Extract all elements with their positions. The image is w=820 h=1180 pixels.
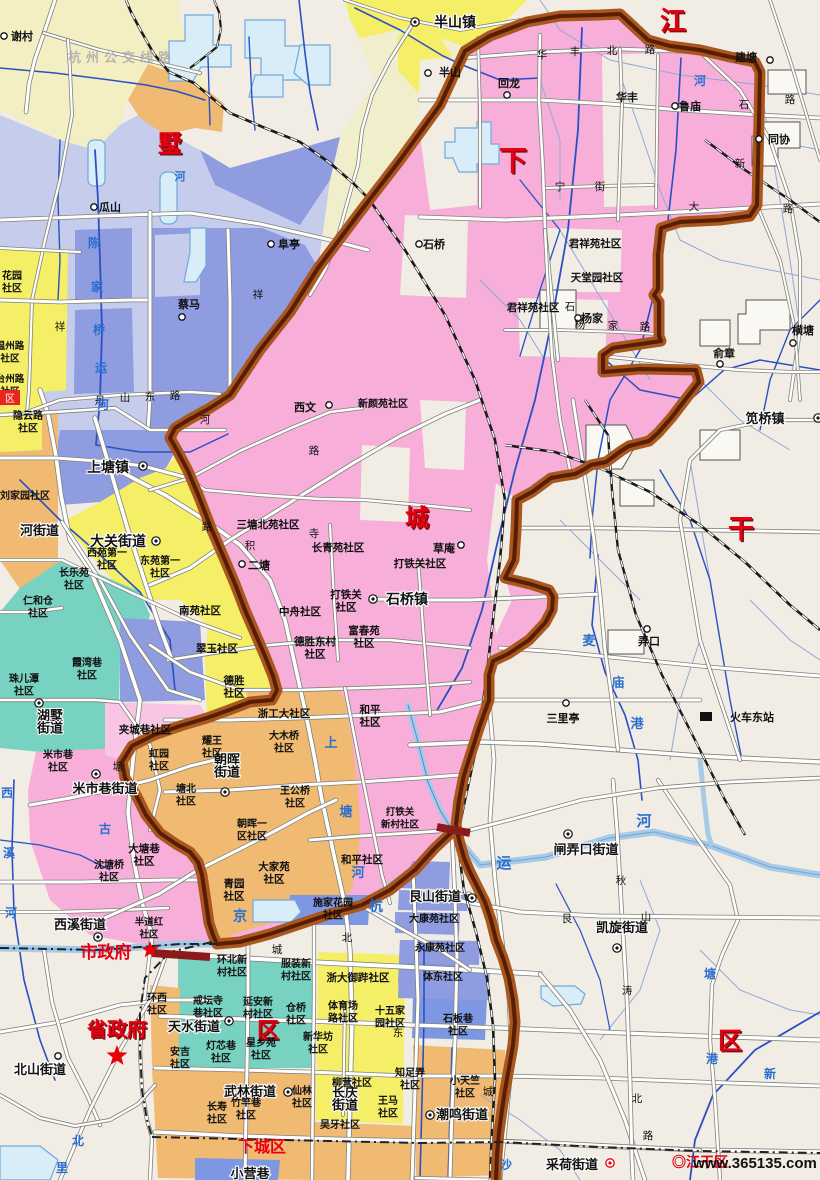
svg-text:北: 北 [632,1093,643,1105]
svg-text:谢村: 谢村 [11,29,33,43]
svg-text:社区: 社区 [47,761,68,774]
svg-text:社区: 社区 [377,1107,398,1120]
svg-text:社区: 社区 [353,637,375,650]
svg-text:路: 路 [643,1129,654,1142]
svg-text:星乡苑: 星乡苑 [246,1036,276,1049]
svg-text:山: 山 [120,392,131,404]
svg-text:石桥镇: 石桥镇 [385,591,428,607]
svg-text:麦: 麦 [582,633,596,648]
svg-text:东: 东 [393,1026,404,1039]
svg-text:溪: 溪 [3,845,16,860]
svg-text:市政府: 市政府 [81,942,132,962]
svg-text:闸弄口街道: 闸弄口街道 [553,842,618,857]
svg-text:温州路: 温州路 [0,340,25,352]
svg-text:河: 河 [636,812,651,830]
svg-text:塘: 塘 [339,804,352,819]
svg-text:霞湾巷: 霞湾巷 [72,656,103,669]
svg-text:路: 路 [645,43,656,56]
svg-text:北: 北 [607,45,618,57]
svg-text:君祥苑社区: 君祥苑社区 [507,301,560,314]
svg-text:南苑社区: 南苑社区 [179,604,221,617]
svg-text:君祥苑社区: 君祥苑社区 [569,237,622,250]
svg-text:城: 城 [483,1086,494,1098]
svg-text:社区: 社区 [63,579,84,592]
svg-text:河: 河 [4,905,17,920]
svg-text:台州路: 台州路 [0,373,25,385]
svg-text:德胜: 德胜 [223,674,245,687]
svg-text:施家花园: 施家花园 [313,896,353,909]
svg-text:服装新: 服装新 [281,957,311,970]
svg-text:河: 河 [693,73,706,88]
svg-text:西苑第一: 西苑第一 [87,546,127,559]
svg-text:采荷街道: 采荷街道 [545,1157,598,1172]
svg-text:半山: 半山 [439,65,461,79]
svg-text:墅: 墅 [158,131,182,158]
svg-text:社区: 社区 [322,909,343,922]
svg-text:社区: 社区 [335,601,357,614]
svg-text:城: 城 [405,504,429,532]
svg-text:大关街道: 大关街道 [90,533,146,549]
svg-text:吴牙社区: 吴牙社区 [320,1118,360,1131]
svg-text:塘: 塘 [113,760,124,773]
svg-text:十五家: 十五家 [375,1004,406,1017]
svg-text:柳营社区: 柳营社区 [332,1076,372,1089]
svg-text:里: 里 [56,1160,68,1175]
svg-text:竹竿巷: 竹竿巷 [230,1096,262,1109]
svg-text:社区: 社区 [210,1052,231,1065]
svg-text:社区: 社区 [175,795,196,808]
svg-text:西: 西 [1,786,13,800]
svg-text:潮鸣街道: 潮鸣街道 [436,1107,488,1122]
svg-text:朝晖一: 朝晖一 [237,817,267,830]
svg-text:建塘: 建塘 [735,50,757,64]
svg-text:耀王: 耀王 [201,734,222,747]
svg-text:翠玉社区: 翠玉社区 [196,642,238,655]
svg-text:回龙: 回龙 [498,76,520,90]
svg-text:体育场: 体育场 [328,999,358,1012]
svg-text:路: 路 [202,520,213,533]
svg-text:港: 港 [630,716,644,731]
svg-text:家: 家 [608,319,619,332]
svg-text:新村社区: 新村社区 [381,819,420,831]
svg-text:武林街道: 武林街道 [224,1084,276,1099]
svg-text:延安新: 延安新 [242,995,273,1008]
svg-text:浙大御跸社区: 浙大御跸社区 [327,971,390,984]
svg-text:新: 新 [735,157,746,170]
svg-text:社区: 社区 [250,1049,271,1062]
svg-text:陈: 陈 [88,235,100,250]
svg-text:瓜山: 瓜山 [99,200,121,214]
svg-text:涛: 涛 [622,984,633,997]
svg-text:村社区: 村社区 [217,966,247,979]
svg-text:西文: 西文 [294,400,317,414]
svg-text:笕桥镇: 笕桥镇 [745,411,784,426]
svg-text:社区: 社区 [76,669,97,682]
svg-text:沈塘桥: 沈塘桥 [94,858,125,871]
svg-text:寺: 寺 [309,528,320,540]
svg-text:长乐苑: 长乐苑 [59,566,89,579]
svg-text:村社区: 村社区 [243,1008,273,1021]
svg-text:路: 路 [783,202,794,215]
svg-text:街道: 街道 [331,1098,358,1113]
svg-text:祥: 祥 [55,320,66,333]
svg-text:河: 河 [351,865,364,880]
svg-text:横塘: 横塘 [792,323,814,337]
svg-text:社区: 社区 [206,1113,227,1126]
svg-text:祥: 祥 [253,288,264,301]
svg-text:和平: 和平 [359,703,381,716]
svg-text:家: 家 [91,279,104,294]
svg-text:永康苑社区: 永康苑社区 [414,941,465,954]
svg-text:火车东站: 火车东站 [730,710,774,724]
svg-text:杨: 杨 [575,318,586,331]
svg-text:区: 区 [718,1028,742,1055]
svg-text:打铁关: 打铁关 [386,806,415,818]
svg-text:石: 石 [565,301,576,313]
svg-text:米市巷: 米市巷 [43,748,74,761]
svg-text:社区: 社区 [359,716,381,729]
svg-text:弄口: 弄口 [637,635,660,648]
svg-text:社区: 社区 [263,873,285,886]
svg-text:仓桥: 仓桥 [285,1001,307,1014]
svg-text:社区: 社区 [201,747,222,760]
svg-text:大: 大 [689,200,700,213]
svg-text:小营巷: 小营巷 [230,1166,270,1180]
svg-text:社区: 社区 [13,685,34,698]
svg-text:蔡马: 蔡马 [177,297,200,311]
svg-text:石: 石 [739,99,750,111]
svg-text:港: 港 [706,1051,719,1066]
svg-text:半道红: 半道红 [135,916,164,928]
svg-text:中舟社区: 中舟社区 [279,605,321,618]
svg-text:路: 路 [640,320,651,333]
svg-text:河街道: 河街道 [20,523,59,538]
svg-text:社区: 社区 [223,890,245,903]
svg-text:长寿: 长寿 [207,1100,227,1113]
svg-text:花园: 花园 [2,269,22,282]
svg-text:社区: 社区 [454,1087,475,1100]
svg-text:社区: 社区 [27,607,48,620]
svg-text:社区: 社区 [447,1025,468,1038]
svg-text:下: 下 [499,145,527,176]
svg-text:三里亭: 三里亭 [547,711,580,725]
svg-text:桥: 桥 [93,322,106,337]
svg-text:艮山街道: 艮山街道 [409,889,461,904]
svg-text:灯芯巷: 灯芯巷 [206,1039,237,1052]
svg-text:三塘北苑社区: 三塘北苑社区 [237,518,300,531]
svg-text:社区: 社区 [304,648,326,661]
svg-text:京: 京 [233,908,247,924]
svg-text:大康苑社区: 大康苑社区 [409,912,459,925]
svg-text:www.365135.com: www.365135.com [692,1155,817,1172]
svg-text:艮: 艮 [562,913,573,925]
svg-text:省政府: 省政府 [86,1017,147,1041]
svg-text:路社区: 路社区 [328,1012,358,1025]
svg-text:街道: 街道 [213,765,240,780]
svg-text:北山街道: 北山街道 [14,1062,66,1077]
svg-text:珠儿潭: 珠儿潭 [9,672,39,685]
svg-text:天水街道: 天水街道 [168,1019,220,1034]
svg-text:阜亭: 阜亭 [278,237,300,251]
svg-text:山: 山 [641,911,652,923]
svg-text:社区: 社区 [148,760,169,773]
svg-text:社区: 社区 [307,1043,328,1056]
svg-text:运: 运 [496,855,511,872]
svg-text:华: 华 [537,48,548,61]
svg-text:王马: 王马 [378,1095,398,1107]
svg-text:安吉: 安吉 [170,1045,190,1058]
svg-text:河: 河 [175,169,186,183]
svg-text:街: 街 [595,180,606,193]
svg-text:上: 上 [324,735,337,750]
svg-text:大塘巷: 大塘巷 [128,842,160,855]
svg-text:大木桥: 大木桥 [269,729,300,742]
svg-text:社区: 社区 [96,559,117,572]
svg-text:知足弄: 知足弄 [394,1066,425,1079]
svg-text:东: 东 [145,390,156,403]
svg-text:社区: 社区 [285,1014,306,1027]
svg-text:社区: 社区 [133,855,155,868]
svg-text:仙林: 仙林 [292,1084,313,1097]
svg-text:刘家园社区: 刘家园社区 [0,489,50,502]
svg-text:街道: 街道 [36,721,63,736]
svg-text:东苑第一: 东苑第一 [140,554,180,567]
svg-text:仁和仓: 仁和仓 [23,594,54,607]
svg-text:社区: 社区 [1,282,22,295]
svg-text:社区: 社区 [291,1097,312,1110]
svg-text:沙: 沙 [500,1158,512,1172]
svg-text:戒坛寺: 戒坛寺 [193,994,223,1007]
svg-text:城: 城 [272,944,283,956]
svg-text:石桥: 石桥 [422,237,446,251]
svg-text:北: 北 [342,932,353,944]
svg-text:社区: 社区 [138,929,159,941]
svg-text:江: 江 [660,6,686,36]
svg-text:塘北: 塘北 [176,782,196,795]
svg-text:小天竺: 小天竺 [449,1074,480,1087]
svg-text:庙: 庙 [611,675,624,690]
svg-text:长青苑社区: 长青苑社区 [312,541,365,554]
svg-text:夹城巷社区: 夹城巷社区 [119,723,172,736]
svg-text:塘: 塘 [704,966,716,981]
svg-text:打铁关社区: 打铁关社区 [394,557,447,570]
svg-text:积: 积 [245,540,256,552]
svg-text:王公桥: 王公桥 [280,784,311,797]
svg-text:路: 路 [785,93,796,106]
svg-text:社区: 社区 [0,353,20,365]
svg-text:环西: 环西 [147,992,167,1004]
svg-text:北: 北 [72,1133,84,1148]
svg-text:青园: 青园 [224,877,245,890]
svg-text:虹园: 虹园 [149,747,169,760]
svg-text:社区: 社区 [399,1079,420,1092]
svg-text:俞章: 俞章 [712,346,735,360]
svg-text:环北新: 环北新 [217,953,247,966]
svg-text:浙工大社区: 浙工大社区 [258,707,311,720]
svg-text:干: 干 [728,514,754,544]
svg-text:西溪街道: 西溪街道 [54,917,106,932]
svg-text:区: 区 [5,393,15,405]
svg-text:秋: 秋 [616,874,627,887]
svg-text:富春苑: 富春苑 [348,624,380,637]
svg-text:社区: 社区 [235,1109,256,1122]
svg-text:社区: 社区 [98,871,119,884]
svg-text:华丰: 华丰 [616,90,638,104]
svg-text:新: 新 [764,1066,776,1081]
svg-text:下城区: 下城区 [238,1138,286,1156]
svg-text:河: 河 [200,414,211,426]
svg-text:社区: 社区 [273,742,294,755]
svg-text:新颜苑社区: 新颜苑社区 [358,397,408,410]
svg-text:大家苑: 大家苑 [258,860,290,873]
svg-text:杭州公交线路: 杭州公交线路 [68,50,176,65]
svg-text:巷社区: 巷社区 [192,1007,223,1020]
svg-text:古: 古 [99,821,111,836]
svg-text:体东社区: 体东社区 [423,970,463,983]
svg-text:天堂园社区: 天堂园社区 [571,271,624,284]
svg-text:鲁庙: 鲁庙 [679,99,701,113]
svg-text:丰: 丰 [570,45,581,58]
svg-text:石板巷: 石板巷 [442,1012,474,1025]
svg-text:社区: 社区 [169,1058,190,1071]
svg-text:上塘镇: 上塘镇 [87,459,129,475]
svg-text:二塘: 二塘 [248,558,270,572]
svg-text:打铁关: 打铁关 [330,588,362,601]
svg-text:社区: 社区 [223,687,245,700]
svg-text:隐云路: 隐云路 [13,409,44,422]
svg-text:村社区: 村社区 [281,970,311,983]
svg-text:区社区: 区社区 [237,830,267,843]
svg-text:半山镇: 半山镇 [434,14,476,30]
svg-text:新华坊: 新华坊 [303,1030,333,1043]
svg-text:杭: 杭 [369,898,383,914]
svg-text:同协: 同协 [768,132,790,146]
svg-text:德胜东村: 德胜东村 [293,635,336,648]
svg-text:米市巷街道: 米市巷街道 [72,781,137,796]
svg-text:社区: 社区 [17,422,38,435]
svg-text:宁: 宁 [555,180,566,193]
svg-text:草庵: 草庵 [433,541,456,555]
svg-text:路: 路 [170,389,181,402]
svg-text:路: 路 [309,444,320,457]
svg-text:社区: 社区 [284,797,305,810]
svg-text:社区: 社区 [146,1004,167,1017]
svg-text:社区: 社区 [149,567,170,580]
svg-text:运: 运 [95,361,107,375]
svg-text:河: 河 [96,397,109,412]
